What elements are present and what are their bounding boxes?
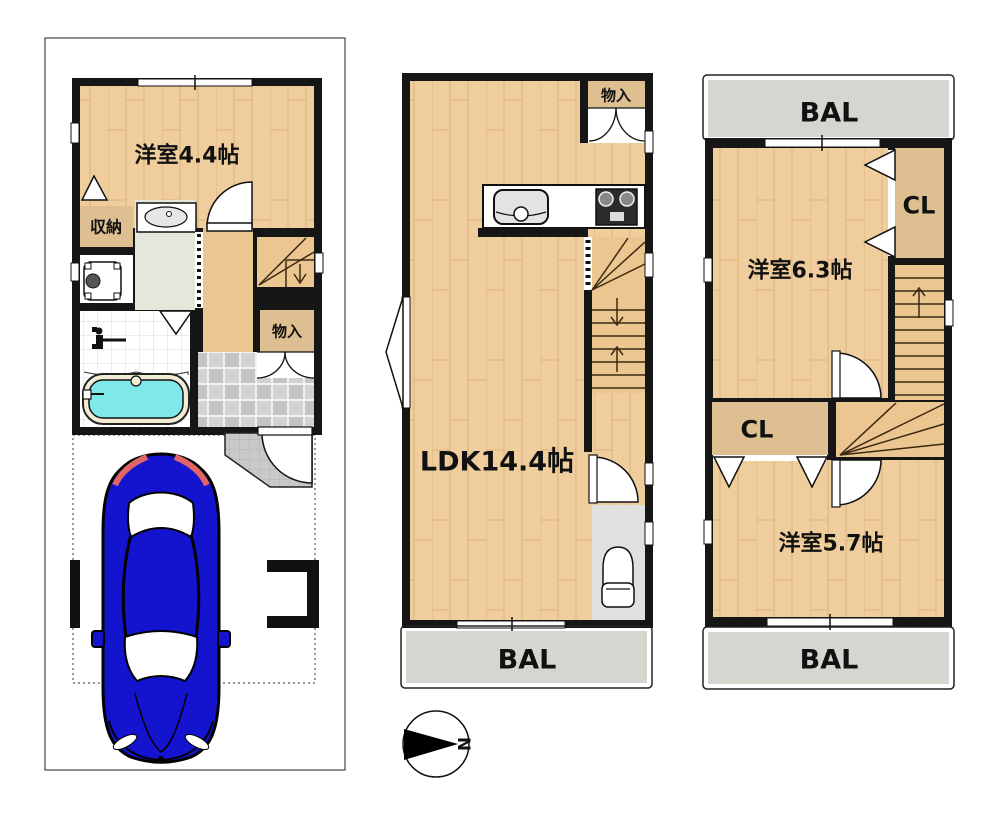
stairs2f-wall [584, 290, 592, 452]
storage-label: 収納 [90, 218, 122, 237]
closet3f-bottom-wall [828, 402, 836, 457]
closet3f-bottom-label: CL [741, 415, 774, 443]
closet1f-label: 物入 [272, 322, 302, 340]
floorplan-page: 洋室4.4帖 収納 物入 [0, 0, 1000, 816]
bathtub-icon [83, 372, 189, 424]
north-label: N [453, 737, 473, 751]
stove-icon [596, 189, 637, 225]
hall-floor [203, 228, 253, 352]
floor2-plan: LDK14.4帖 物入 BAL [386, 73, 653, 688]
toilet1f-icon [84, 262, 121, 300]
kitchen-counter [483, 185, 645, 228]
floor3-plan: BAL 洋室6.3帖 CL CL 洋室5.7帖 BAL [703, 75, 954, 689]
kitchen-wall-stub [478, 228, 588, 237]
closet3f-top-label: CL [903, 191, 936, 219]
balcony2f-label: BAL [498, 644, 557, 675]
ldk-label: LDK14.4帖 [420, 446, 574, 477]
balcony3f-top-label: BAL [800, 97, 859, 128]
closet1f-doors [257, 352, 314, 378]
bedroom63-label: 洋室6.3帖 [748, 258, 853, 284]
gate-post-right [267, 560, 319, 628]
bedroom57-label: 洋室5.7帖 [779, 531, 884, 557]
closet2f-wall [580, 73, 588, 143]
toilet2f-icon [602, 547, 634, 607]
bay-window-icon [386, 297, 410, 408]
bedroom1-label: 洋室4.4帖 [135, 143, 240, 169]
floorplan-drawing: 洋室4.4帖 収納 物入 [0, 0, 1000, 816]
compass: N [403, 711, 473, 777]
floor1-plan: 洋室4.4帖 収納 物入 [45, 38, 345, 770]
washbasin-icon [137, 203, 196, 232]
gate-post-left [70, 560, 80, 628]
washroom-sliding-door [195, 232, 203, 308]
balcony3f-bottom-label: BAL [800, 644, 859, 675]
closet2f-label: 物入 [601, 86, 631, 104]
stairs3f-floor [895, 265, 944, 400]
car-icon [92, 454, 230, 762]
entrance-porch [225, 433, 312, 487]
entrance-door-leaf [258, 427, 312, 435]
closet2f-doors [588, 108, 645, 143]
stairs2f-rail [584, 237, 592, 290]
